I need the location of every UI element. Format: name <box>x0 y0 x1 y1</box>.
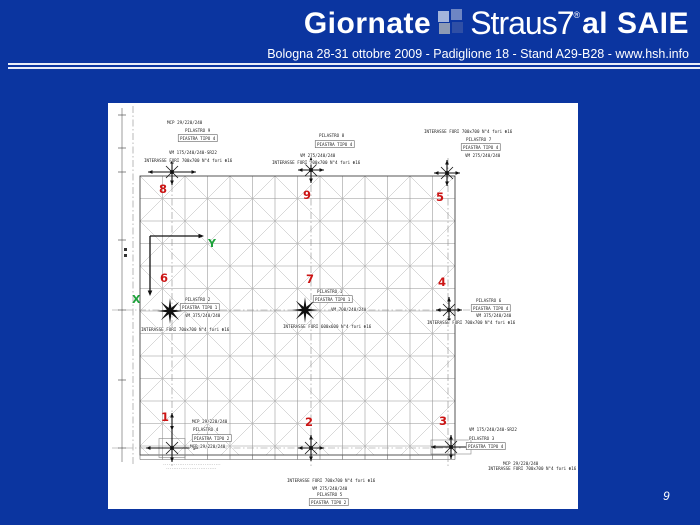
annotation-pilastro-5: PIASTRA TIPO 2 <box>311 500 347 505</box>
annotation-pilastro-2: INTERASSE FORI 700x700 N°4 fori Φ16 <box>141 327 230 332</box>
annotation-pilastro-3: VM 175/240/240-SR22 <box>469 427 517 432</box>
slide: Giornate Straus7 ® al SAIE Bologna 28-31… <box>0 0 700 525</box>
column-symbol <box>157 298 183 324</box>
logo-square <box>439 23 450 34</box>
annotation-pilastro-6: PILASTRO 6 <box>476 298 502 303</box>
annotation-pilastro-9: PIASTRA TIPO 4 <box>180 136 216 141</box>
annotation-pilastro-4: PIASTRA TIPO 2 <box>194 436 230 441</box>
annotation-pilastro-5: INTERASSE FORI 700x700 N°4 fori Φ16 <box>287 478 376 483</box>
annotation-pilastro-1: INTERASSE FORI 600x600 N°4 fori Φ16 <box>283 324 372 329</box>
title-straus7: Straus7 <box>470 7 573 39</box>
structural-plan: YX895674123MCP 29/220/240PILASTRO 9PIAST… <box>108 103 578 509</box>
annotation-pilastro-7: VM 275/240/240 <box>465 153 501 158</box>
load-point-number: 8 <box>159 182 167 196</box>
annotation-pilastro-6: VM 375/240/240 <box>476 313 512 318</box>
axis-label-y: Y <box>207 237 217 250</box>
annotation-pilastro-1: PIASTRA TIPO 1 <box>315 297 351 302</box>
annotation-pilastro-8: INTERASSE FORI 700x700 N°4 fori Φ16 <box>272 160 361 165</box>
load-point-number: 4 <box>438 275 446 289</box>
annotation-pilastro-5: PILASTRO 5 <box>317 492 343 497</box>
annotation-pilastro-8: PIASTRA TIPO 4 <box>317 142 353 147</box>
annotation-pilastro-4: PILASTRO 4 <box>193 427 219 432</box>
load-point-number: 7 <box>306 272 314 286</box>
load-point-number: 5 <box>436 190 444 204</box>
drawing-panel: YX895674123MCP 29/220/240PILASTRO 9PIAST… <box>108 103 578 509</box>
annotation-pilastro-3: PIASTRA TIPO 4 <box>468 444 504 449</box>
annotation-pilastro-7: PILASTRO 7 <box>466 137 492 142</box>
column-symbol <box>434 160 460 186</box>
annotation-pilastro-2: PIASTRA TIPO 1 <box>182 305 218 310</box>
annotation-pilastro-3: PILASTRO 3 <box>469 436 495 441</box>
annotation-pilastro-7: PIASTRA TIPO 4 <box>463 145 499 150</box>
annotation-pilastro-6: PIASTRA TIPO 4 <box>473 306 509 311</box>
header-divider <box>8 63 700 69</box>
annotation-pilastro-2: VM 375/240/240 <box>185 313 221 318</box>
load-point-number: 6 <box>160 271 168 285</box>
logo-square <box>451 9 462 20</box>
annotation-pilastro-4: MCP 29/220/240 <box>192 419 228 424</box>
logo-square <box>452 22 463 33</box>
straus7-logo-icon <box>438 9 465 36</box>
annotation-pilastro-8: VM 275/240/240 <box>300 153 336 158</box>
support-ticks <box>140 455 455 460</box>
registered-mark-icon: ® <box>573 10 580 20</box>
header-subtitle: Bologna 28-31 ottobre 2009 - Padiglione … <box>267 47 689 61</box>
annotation-pilastro-1: VM 700/240/240 <box>331 307 367 312</box>
dimension-ticks <box>118 115 127 448</box>
annotation-pilastro-3: INTERASSE FORI 700x700 N°4 fori Φ16 <box>488 466 577 471</box>
micro-note: ···························· <box>166 466 217 470</box>
title-giornate: Giornate <box>304 9 431 39</box>
annotation-pilastro-5: VM 275/240/240 <box>312 486 348 491</box>
annotation-pilastro-8: PILASTRO 8 <box>319 133 345 138</box>
page-number: 9 <box>663 489 670 503</box>
axes <box>148 234 204 296</box>
annotation-pilastro-9: PILASTRO 9 <box>185 128 211 133</box>
axis-label-x: X <box>132 293 141 306</box>
annotation-pilastro-9: VM 175/240/240-SR22 <box>169 150 217 155</box>
header-title: Giornate Straus7 ® al SAIE <box>304 9 689 39</box>
annotation-pilastro-9: MCP 29/220/240 <box>167 120 203 125</box>
annotation-pilastro-6: INTERASSE FORI 700x700 N°4 fori Φ16 <box>427 320 516 325</box>
title-al-saie: al SAIE <box>582 9 689 39</box>
annotation-pilastro-2: PILASTRO 2 <box>185 297 211 302</box>
annotation-pilastro-9: INTERASSE FORI 700x700 N°4 fori Φ16 <box>144 158 233 163</box>
logo-square <box>438 11 449 22</box>
load-point-number: 2 <box>305 415 313 429</box>
annotation-pilastro-1: PILASTRO 1 <box>317 289 343 294</box>
annotation-pilastro-7: INTERASSE FORI 700x700 N°4 fori Φ16 <box>424 129 513 134</box>
load-point-number: 3 <box>439 414 447 428</box>
load-point-number: 9 <box>303 188 311 202</box>
load-point-number: 1 <box>161 410 169 424</box>
annotation-pilastro-4: MCP 29/220/240 <box>190 444 226 449</box>
